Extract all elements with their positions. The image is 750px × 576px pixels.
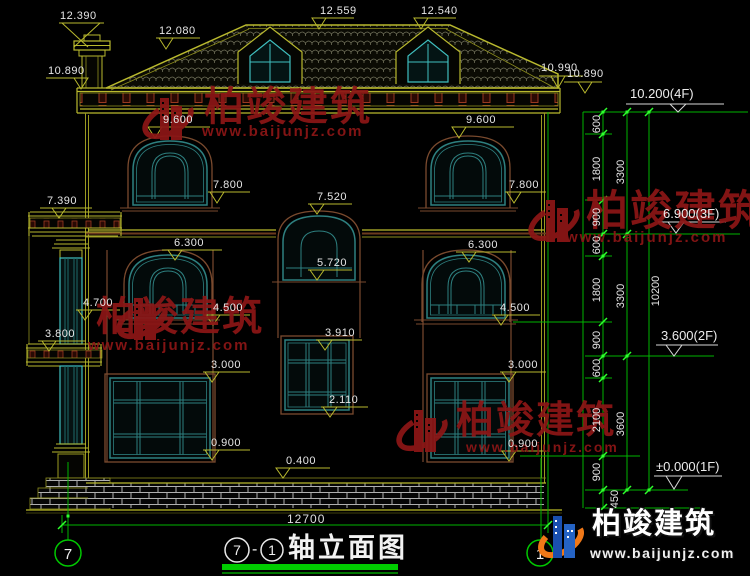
vdim: 1800 — [591, 268, 603, 312]
elevation-mark: 0.400 — [286, 456, 316, 467]
window-1f-left — [105, 374, 215, 462]
axis-bubble-left: 7 — [61, 546, 75, 563]
elevation-mark: 7.800 — [213, 180, 243, 191]
elevation-mark: 12.559 — [320, 6, 357, 17]
level-1f: ±0.000(1F) — [656, 460, 720, 473]
elevation-mark: 4.500 — [213, 303, 243, 314]
vdim-total: 10200 — [650, 269, 662, 313]
watermark-logo-icon — [392, 398, 454, 460]
title-underline — [222, 564, 398, 570]
vdim: 3600 — [615, 402, 627, 446]
elevation-mark: 6.300 — [174, 238, 204, 249]
watermark-brand: 柏竣建筑 — [204, 87, 372, 127]
elevation-mark: 7.390 — [47, 196, 77, 207]
brand-logo-site: www.baijunjz.com — [590, 546, 735, 560]
elevation-mark: 3.800 — [45, 329, 75, 340]
elevation-mark: 12.390 — [60, 11, 97, 22]
vdim: 2100 — [591, 398, 603, 442]
elevation-mark: 12.080 — [159, 26, 196, 37]
elevation-mark: 10.890 — [567, 69, 604, 80]
vdim: 3300 — [615, 150, 627, 194]
elevation-mark: 7.800 — [509, 180, 539, 191]
elevation-mark: 0.900 — [211, 438, 241, 449]
vdim: 3300 — [615, 274, 627, 318]
vdim: 600 — [591, 102, 603, 146]
title-axis-to: 1 — [260, 543, 284, 557]
plinth — [26, 478, 562, 513]
elevation-mark: 9.600 — [466, 115, 496, 126]
elevation-mark: 5.720 — [317, 258, 347, 269]
drawing-title: 轴立面图 — [288, 535, 408, 562]
elevation-mark: 9.600 — [163, 115, 193, 126]
cad-elevation-drawing: 柏竣建筑 www.baijunjz.com 柏竣建筑 www.baijunjz.… — [0, 0, 750, 576]
title-dash: - — [252, 542, 257, 558]
elevation-mark: 6.300 — [468, 240, 498, 251]
vdim: 900 — [591, 450, 603, 494]
watermark-site: www.baijunjz.com — [88, 338, 249, 353]
elevation-mark: 4.500 — [500, 303, 530, 314]
level-2f: 3.600(2F) — [661, 329, 717, 342]
elevation-mark: 2.110 — [329, 395, 358, 406]
brand-logo-icon — [534, 500, 588, 574]
level-3f: 6.900(3F) — [663, 207, 719, 220]
level-marker-symbols — [626, 104, 726, 489]
elevation-mark: 12.540 — [421, 6, 458, 17]
elevation-mark: 3.910 — [325, 328, 355, 339]
vdim: 600 — [591, 223, 603, 267]
brand-logo-name: 柏竣建筑 — [592, 510, 716, 539]
elevation-mark: 10.890 — [48, 66, 85, 77]
watermark-site: www.baijunjz.com — [202, 124, 363, 139]
elevation-mark: 0.900 — [508, 439, 538, 450]
title-axis-from: 7 — [225, 543, 249, 557]
window-stair-upper — [272, 211, 366, 282]
vdim: 1800 — [591, 147, 603, 191]
elevation-mark: 3.000 — [211, 360, 241, 371]
vdim: 600 — [591, 346, 603, 390]
bottom-dimension: 12700 — [287, 512, 325, 526]
level-4f: 10.200(4F) — [630, 87, 694, 100]
elevation-mark: 7.520 — [317, 192, 347, 203]
chimney — [74, 35, 110, 88]
elevation-mark: 3.000 — [508, 360, 538, 371]
elevation-mark: 4.700 — [83, 298, 113, 309]
